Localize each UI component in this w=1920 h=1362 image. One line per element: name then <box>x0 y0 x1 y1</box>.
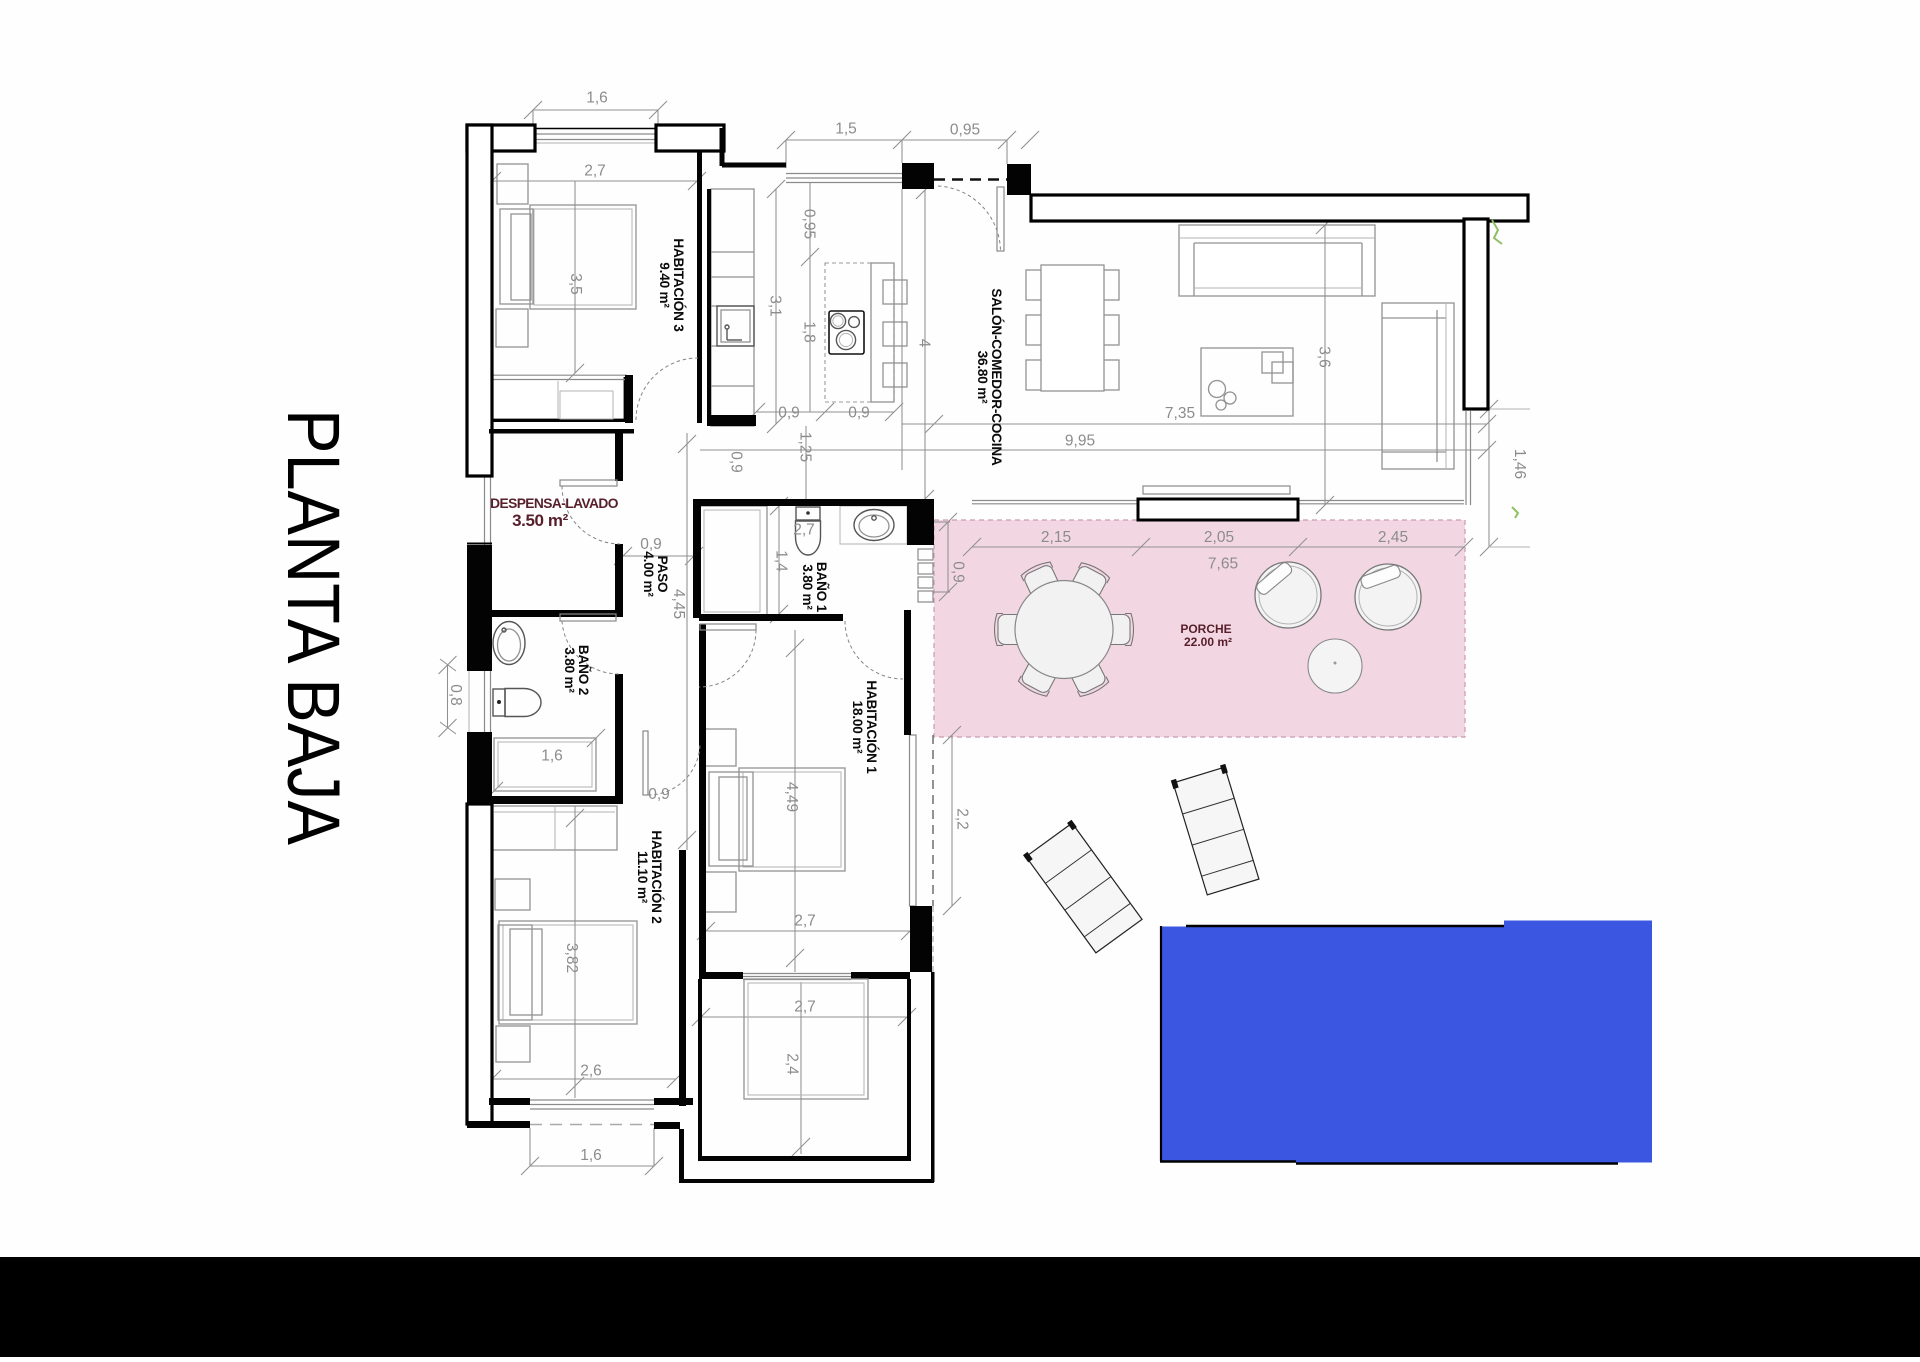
svg-text:1,25: 1,25 <box>797 432 814 462</box>
svg-text:0,9: 0,9 <box>950 561 967 583</box>
svg-text:7,35: 7,35 <box>1165 405 1195 422</box>
svg-text:0,95: 0,95 <box>950 122 980 139</box>
svg-text:HABITACIÓN 2: HABITACIÓN 2 <box>649 830 664 924</box>
svg-text:1,4: 1,4 <box>773 550 790 572</box>
svg-text:2,7: 2,7 <box>793 522 815 539</box>
svg-text:2,45: 2,45 <box>1378 529 1408 546</box>
svg-text:4: 4 <box>916 339 933 348</box>
svg-text:1,46: 1,46 <box>1511 449 1528 479</box>
svg-text:0,9: 0,9 <box>848 405 870 422</box>
svg-text:7,65: 7,65 <box>1208 556 1238 573</box>
svg-text:PASO: PASO <box>655 556 670 593</box>
svg-text:BAÑO 1: BAÑO 1 <box>814 562 829 613</box>
svg-text:SALÓN-COMEDOR-COCINA: SALÓN-COMEDOR-COCINA <box>989 288 1004 466</box>
svg-text:2,7: 2,7 <box>584 163 606 180</box>
svg-text:3,5: 3,5 <box>567 273 584 295</box>
svg-text:2,2: 2,2 <box>954 808 971 830</box>
svg-text:22.00 m²: 22.00 m² <box>1184 635 1232 649</box>
svg-text:3,6: 3,6 <box>1316 346 1333 368</box>
svg-text:HABITACIÓN 3: HABITACIÓN 3 <box>671 238 686 332</box>
svg-text:HABITACIÓN 1: HABITACIÓN 1 <box>864 680 879 774</box>
svg-text:PORCHE: PORCHE <box>1180 622 1231 636</box>
svg-text:1,8: 1,8 <box>801 321 818 343</box>
svg-text:0,8: 0,8 <box>447 684 464 706</box>
svg-text:BAÑO 2: BAÑO 2 <box>576 645 591 696</box>
svg-text:1,6: 1,6 <box>541 748 563 765</box>
svg-text:3,82: 3,82 <box>563 943 580 973</box>
svg-text:0,9: 0,9 <box>728 451 745 473</box>
svg-text:36.80 m²: 36.80 m² <box>975 351 990 404</box>
svg-text:11.10 m²: 11.10 m² <box>635 851 650 904</box>
svg-text:0,9: 0,9 <box>640 536 662 553</box>
svg-text:3.80 m²: 3.80 m² <box>562 647 577 693</box>
svg-text:4,45: 4,45 <box>670 589 687 619</box>
svg-text:4,49: 4,49 <box>783 782 800 812</box>
svg-text:2,6: 2,6 <box>580 1063 602 1080</box>
svg-text:2,7: 2,7 <box>794 913 816 930</box>
svg-text:4.00 m²: 4.00 m² <box>641 551 656 597</box>
svg-text:PLANTA BAJA: PLANTA BAJA <box>272 409 355 846</box>
svg-text:2,05: 2,05 <box>1204 529 1234 546</box>
svg-text:9,95: 9,95 <box>1065 433 1095 450</box>
svg-text:2,15: 2,15 <box>1041 529 1071 546</box>
svg-text:1,5: 1,5 <box>835 121 857 138</box>
svg-text:0,95: 0,95 <box>801 209 818 239</box>
svg-text:2,4: 2,4 <box>784 1053 801 1075</box>
svg-text:3.50 m²: 3.50 m² <box>512 511 569 530</box>
svg-text:3.80 m²: 3.80 m² <box>800 564 815 610</box>
svg-text:1,6: 1,6 <box>580 1147 602 1164</box>
svg-text:0,9: 0,9 <box>648 786 670 803</box>
svg-text:0,9: 0,9 <box>778 405 800 422</box>
svg-text:DESPENSA-LAVADO: DESPENSA-LAVADO <box>490 496 619 511</box>
svg-text:3,1: 3,1 <box>767 295 784 317</box>
svg-text:1,6: 1,6 <box>586 90 608 107</box>
svg-text:2,7: 2,7 <box>794 999 816 1016</box>
svg-text:9.40 m²: 9.40 m² <box>657 262 672 308</box>
svg-text:18.00 m²: 18.00 m² <box>850 701 865 754</box>
